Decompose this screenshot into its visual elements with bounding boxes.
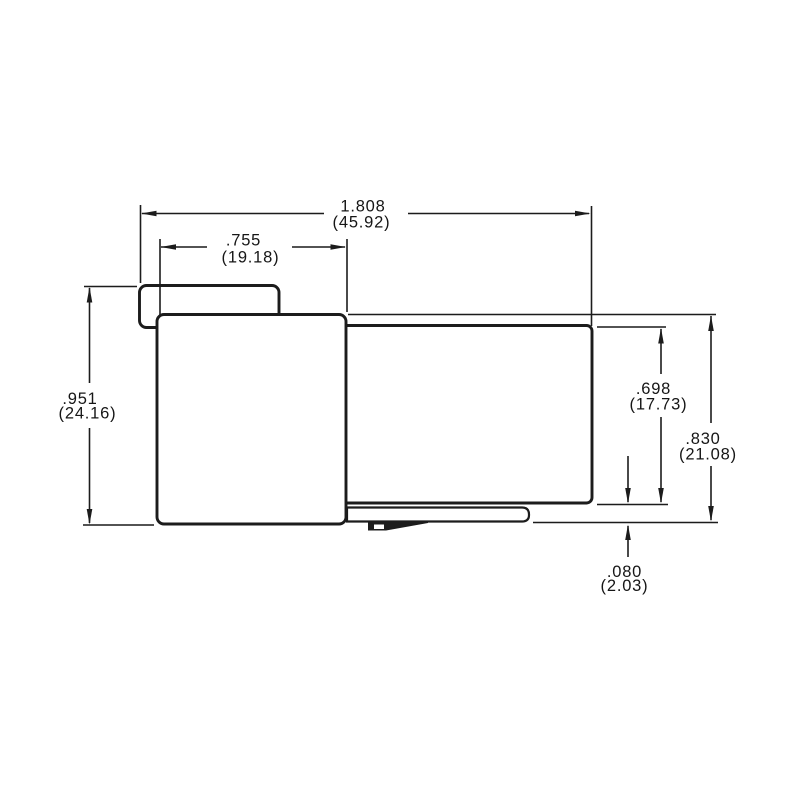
svg-text:.755: .755 [226,232,261,250]
svg-text:(2.03): (2.03) [601,577,649,595]
svg-text:(17.73): (17.73) [630,396,688,414]
svg-text:(45.92): (45.92) [333,214,391,232]
svg-text:(19.18): (19.18) [222,249,280,267]
svg-text:(24.16): (24.16) [59,405,117,423]
svg-text:(21.08): (21.08) [679,446,737,464]
